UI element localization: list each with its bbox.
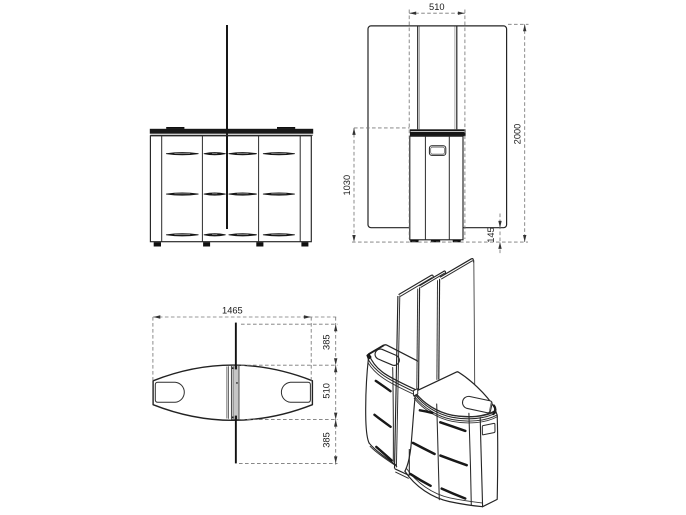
svg-text:2000: 2000: [512, 124, 522, 145]
svg-text:510: 510: [321, 383, 331, 399]
svg-text:510: 510: [429, 2, 445, 12]
svg-text:145: 145: [486, 227, 496, 243]
svg-text:1030: 1030: [342, 175, 352, 196]
svg-text:385: 385: [321, 334, 331, 350]
svg-text:1465: 1465: [222, 306, 243, 316]
svg-text:385: 385: [321, 432, 331, 448]
